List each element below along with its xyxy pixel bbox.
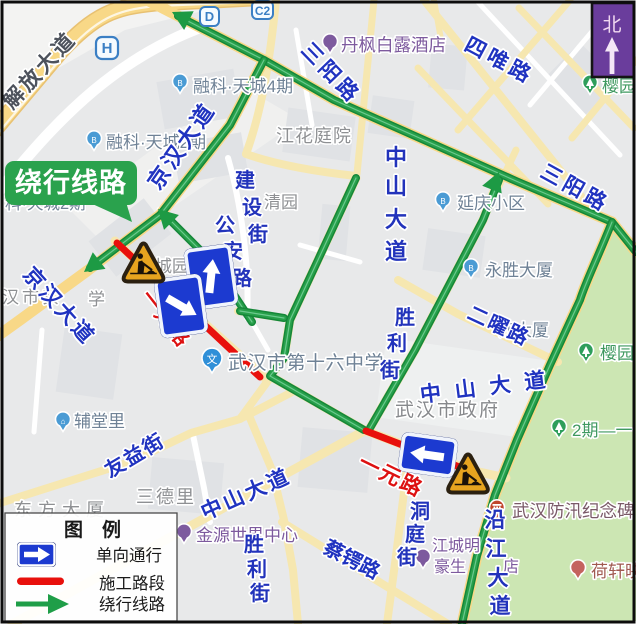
svg-text:B: B	[440, 197, 445, 206]
svg-text:文: 文	[207, 352, 218, 366]
svg-text:单向通行: 单向通行	[96, 546, 162, 565]
svg-text:大: 大	[488, 567, 509, 590]
svg-text:H: H	[102, 40, 113, 57]
svg-text:街: 街	[247, 222, 268, 246]
svg-text:街: 街	[396, 545, 417, 569]
svg-text:⌂: ⌂	[61, 417, 66, 426]
svg-text:洞: 洞	[410, 500, 430, 523]
svg-text:江城明: 江城明	[432, 537, 480, 555]
svg-text:庭: 庭	[405, 522, 425, 546]
svg-text:利: 利	[247, 558, 267, 581]
svg-text:B: B	[468, 264, 473, 273]
svg-text:樱园: 樱园	[600, 344, 634, 363]
svg-text:胜: 胜	[244, 533, 264, 556]
svg-text:沿: 沿	[485, 509, 506, 532]
svg-text:B: B	[91, 136, 96, 145]
svg-text:辅堂里: 辅堂里	[74, 412, 125, 431]
svg-text:豪生: 豪生	[434, 557, 466, 576]
svg-text:C2: C2	[255, 4, 271, 18]
svg-text:清园: 清园	[264, 193, 298, 212]
svg-text:大: 大	[385, 207, 407, 232]
svg-text:荷轩映: 荷轩映	[591, 562, 636, 581]
svg-text:武汉市第十六中学: 武汉市第十六中学	[228, 352, 384, 374]
svg-text:丹枫白露酒店: 丹枫白露酒店	[341, 35, 446, 55]
svg-text:绕行线路: 绕行线路	[99, 595, 166, 614]
svg-text:樱园: 樱园	[602, 77, 636, 96]
svg-text:施工路段: 施工路段	[99, 574, 165, 593]
svg-text:山: 山	[385, 174, 407, 199]
svg-text:绕行线路: 绕行线路	[15, 167, 127, 198]
svg-text:融科·天城4期: 融科·天城4期	[193, 77, 293, 96]
svg-text:B: B	[177, 79, 182, 88]
svg-text:延庆小区: 延庆小区	[457, 194, 525, 213]
svg-text:图例: 图例	[64, 518, 140, 541]
svg-text:街: 街	[249, 581, 270, 605]
svg-text:中: 中	[385, 145, 407, 170]
svg-text:设: 设	[242, 196, 262, 219]
svg-text:学: 学	[88, 290, 105, 309]
svg-text:三德里: 三德里	[136, 487, 196, 507]
svg-text:江: 江	[486, 538, 507, 561]
svg-text:北: 北	[602, 14, 621, 36]
svg-text:建: 建	[235, 168, 255, 192]
svg-text:道: 道	[490, 594, 511, 618]
svg-text:2期—一: 2期—一	[572, 421, 632, 440]
svg-text:道: 道	[385, 239, 407, 264]
svg-text:永胜大厦: 永胜大厦	[485, 261, 553, 280]
svg-text:武汉防汛纪念碑: 武汉防汛纪念碑	[512, 501, 635, 521]
svg-text:D: D	[205, 9, 214, 24]
svg-text:江花庭院: 江花庭院	[276, 126, 352, 146]
svg-text:利: 利	[387, 332, 407, 355]
svg-text:胜: 胜	[395, 306, 415, 329]
svg-text:街: 街	[379, 358, 400, 382]
svg-text:公: 公	[215, 214, 235, 237]
